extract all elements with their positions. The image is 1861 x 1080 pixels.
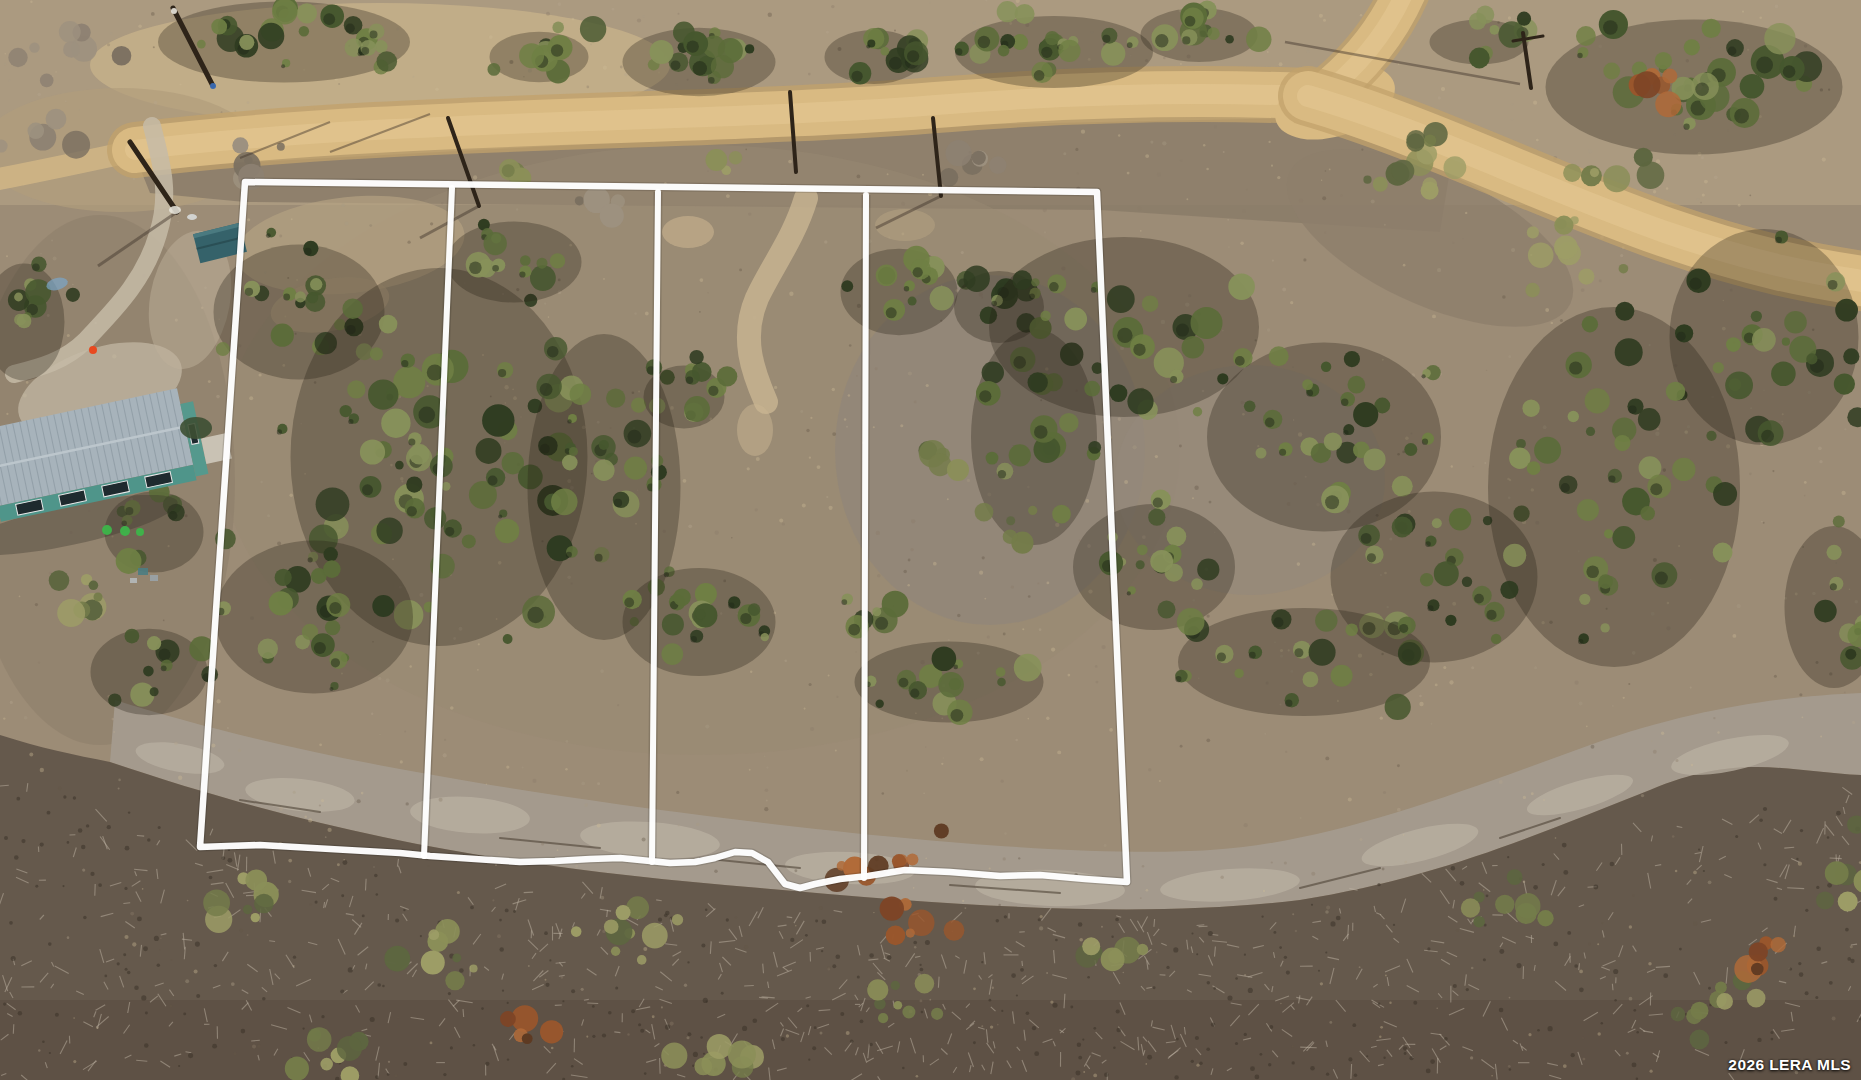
lot-divider-line-3 — [864, 195, 866, 878]
mls-watermark: 2026 LERA MLS — [1728, 1056, 1851, 1074]
aerial-lot-photo: 2026 LERA MLS — [0, 0, 1861, 1080]
aerial-scene-svg — [0, 0, 1861, 1080]
